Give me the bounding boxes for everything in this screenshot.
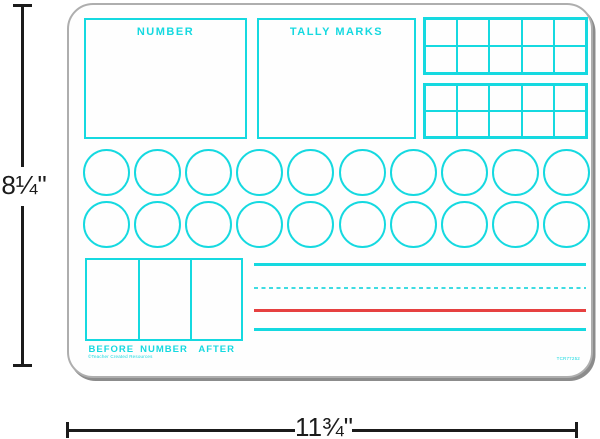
red-baseline (254, 309, 586, 312)
counting-circle (134, 149, 181, 196)
solid-guide-line (254, 328, 586, 331)
product-code-fine-print: TCR77252 (557, 356, 580, 361)
width-dimension-line-left (68, 429, 295, 432)
dashed-guide-line (254, 287, 586, 289)
counting-circle (185, 149, 232, 196)
before-number-after-box (85, 258, 243, 341)
number-section-box: NUMBER (84, 18, 247, 139)
height-dimension-label: 8¼" (0, 172, 50, 198)
handwriting-guide-lines (254, 5, 586, 376)
height-dimension-line-upper (21, 6, 24, 167)
width-dimension-label: 11¾" (287, 414, 361, 439)
before-number-after-cell (87, 260, 138, 339)
solid-guide-line (254, 263, 586, 266)
number-section-label: NUMBER (86, 26, 245, 38)
counting-circle (83, 149, 130, 196)
width-dimension-cap-right (575, 422, 578, 438)
before-number-after-cell (190, 260, 241, 339)
counting-circle (134, 201, 181, 248)
height-dimension-cap-bottom (13, 364, 32, 367)
copyright-fine-print: ©Teacher Created Resources (88, 354, 153, 359)
product-dimension-diagram: NUMBER TALLY MARKS BEFORE NUMBER AFTER ©… (0, 0, 600, 439)
counting-circle (185, 201, 232, 248)
before-number-after-cell (138, 260, 189, 339)
height-dimension-line-lower (21, 206, 24, 366)
after-label: AFTER (190, 344, 243, 355)
height-dimension-cap-top (13, 4, 32, 7)
counting-circle (83, 201, 130, 248)
width-dimension-cap-left (66, 422, 69, 438)
width-dimension-line-right (352, 429, 577, 432)
dry-erase-board: NUMBER TALLY MARKS BEFORE NUMBER AFTER ©… (67, 3, 593, 378)
